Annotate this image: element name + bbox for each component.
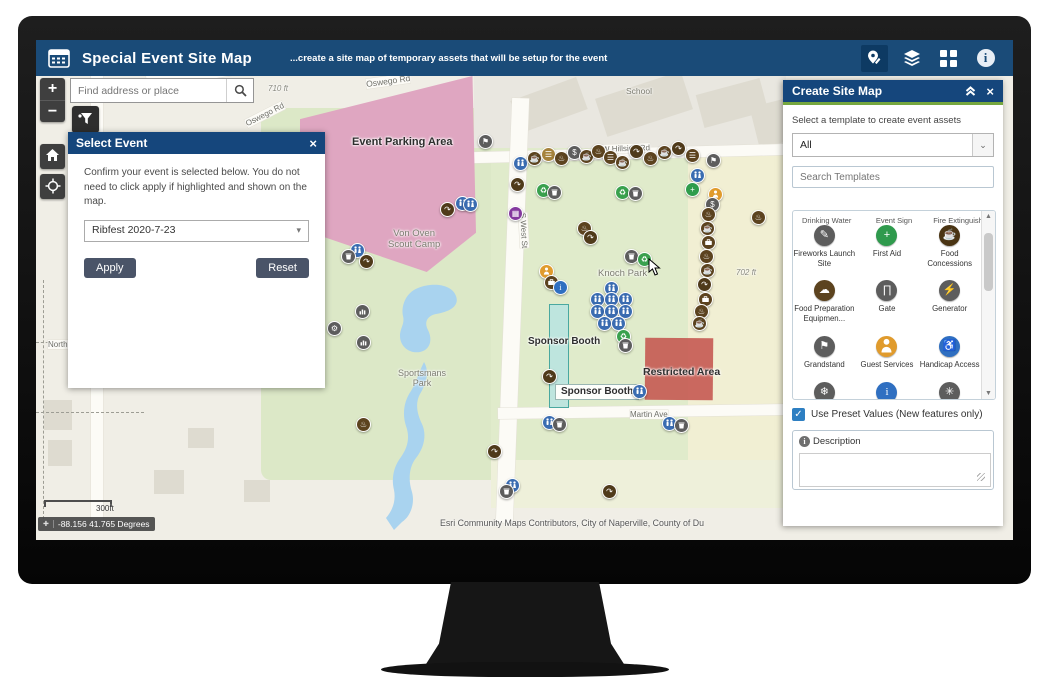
map-label: Restricted Area [643,366,720,378]
marker-trash-icon[interactable] [674,418,689,433]
marker-hotfood-icon[interactable]: ♨ [356,417,371,432]
marker-coffee-icon[interactable]: ☕ [700,221,715,236]
template-label: Food Preparation Equipmen... [793,304,855,323]
template-label: Food Concessions [919,249,981,268]
zoom-out-button[interactable]: − [40,101,65,123]
zoom-in-button[interactable]: + [40,78,65,101]
scroll-up-icon[interactable]: ▲ [982,213,995,220]
scroll-down-icon[interactable]: ▼ [982,390,995,397]
create-site-map-panel: Create Site Map × Select a template to c… [783,80,1003,526]
snow-icon: ❄ [814,382,835,400]
scale-label: 300ft [96,504,114,513]
description-group: i Description [792,430,994,490]
marker-hotfood-icon[interactable]: ♨ [643,151,658,166]
coffee-icon: ☕ [939,225,960,246]
select-event-dialog: Select Event × Confirm your event is sel… [68,132,325,388]
marker-first-aid-icon[interactable]: + [685,182,700,197]
crosshair-icon[interactable]: ✚ [43,520,54,528]
page-title: Special Event Site Map [82,50,252,67]
create-panel-header: Create Site Map × [783,80,1003,102]
select-event-title: Select Event [76,136,309,150]
apply-button[interactable]: Apply [84,258,136,278]
description-textarea[interactable] [799,453,991,487]
marker-restroom-icon[interactable] [513,156,528,171]
marker-coffee-icon[interactable]: ☕ [527,151,542,166]
zoom-controls: + − [40,78,65,122]
select-event-instructions: Confirm your event is selected below. Yo… [84,166,309,210]
marker-trash-icon[interactable] [628,186,643,201]
map-label: Event Parking Area [352,136,452,148]
info-icon: i [977,49,995,67]
home-button[interactable] [40,144,65,169]
map-label: Sponsor Booth [528,336,600,347]
marker-bars-icon[interactable] [356,335,371,350]
template-item[interactable]: ❄Heater - Cooler [793,374,856,400]
template-item[interactable]: +First Aid [856,217,919,268]
edit-pin-button[interactable] [861,45,888,72]
marker-direction-icon[interactable]: ↷ [697,277,712,292]
gate-icon: ∏ [876,280,897,301]
event-dropdown[interactable]: Ribfest 2020-7-23 ▾ [84,220,309,242]
marker-info-icon[interactable]: i [553,280,568,295]
map-label: School [626,86,652,96]
template-label: Fireworks Launch Site [793,249,855,268]
marker-trash-icon[interactable] [552,417,567,432]
template-list: Drinking WaterEvent SignFire Extinguishe… [792,210,996,400]
template-item[interactable]: ✳Laser Light [918,374,981,400]
map-attribution: Esri Community Maps Contributors, City o… [440,518,783,528]
marker-restroom-icon[interactable] [690,168,705,183]
collapse-icon[interactable] [965,86,976,96]
template-label: Gate [879,304,896,314]
preset-values-label: Use Preset Values (New features only) [811,409,983,420]
marker-direction-icon[interactable]: ↷ [440,202,455,217]
layers-button[interactable] [898,45,925,72]
basemap-grid-button[interactable] [935,45,962,72]
scrollbar-thumb[interactable] [984,233,993,291]
info-icon: i [876,382,897,400]
map-zone-yellow-south [491,460,786,508]
marker-coffee-icon[interactable]: ☕ [692,316,707,331]
template-label: Guest Services [861,360,914,370]
template-scrollbar[interactable]: ▲ ▼ [981,211,995,399]
map-label: Von Oven Scout Camp [388,228,440,250]
locate-button[interactable] [40,174,65,199]
app-header: Special Event Site Map ...create a site … [36,40,1013,76]
template-item[interactable]: ⚡Generator [918,272,981,323]
template-item[interactable]: ☁Food Preparation Equipmen... [793,272,856,323]
template-search-input[interactable] [793,172,993,183]
template-label: First Aid [873,249,901,259]
marker-direction-icon[interactable]: ↷ [671,141,686,156]
template-item[interactable]: iInformation Kiosk [856,374,919,400]
preset-values-row: ✓ Use Preset Values (New features only) [792,408,983,421]
template-item[interactable]: ⚑Grandstand [793,328,856,370]
marker-direction-icon[interactable]: ↷ [510,177,525,192]
marker-trash-icon[interactable] [547,185,562,200]
power-icon: ⚡ [939,280,960,301]
reset-button[interactable]: Reset [256,258,309,278]
preset-values-checkbox[interactable]: ✓ [792,408,805,421]
person-icon [876,336,897,357]
search-button[interactable] [226,79,253,102]
close-icon[interactable]: × [309,136,317,151]
plus-icon: + [876,225,897,246]
star-icon: ✳ [939,382,960,400]
page-subtitle: ...create a site map of temporary assets… [290,53,607,64]
marker-coffee-icon[interactable]: ☕ [657,145,672,160]
resize-grip[interactable] [977,473,985,481]
marker-direction-icon[interactable]: ↷ [542,369,557,384]
chevron-down-icon: ⌄ [972,134,993,156]
monitor-stand-base [381,662,669,677]
panel-accent-line [783,102,1003,105]
page: Oswego RdOswego Rd710 ftSchoolW Hillside… [0,0,1049,699]
template-filter-value: All [793,139,972,151]
marker-restroom-icon[interactable] [597,316,612,331]
map-label: Sportsmans Park [398,368,446,388]
chevron-down-icon: ▾ [296,224,301,237]
create-panel-title: Create Site Map [792,84,955,98]
map-label: 710 ft [268,84,288,93]
marker-trash-icon[interactable] [618,338,633,353]
template-label: Handicap Access [920,360,980,370]
marker-burger-icon[interactable]: ☰ [685,148,700,163]
template-filter-select[interactable]: All ⌄ [792,133,994,157]
address-search [70,78,254,103]
select-event-header: Select Event × [68,132,325,154]
info-icon: i [799,436,810,447]
marker-trash-icon[interactable] [499,484,514,499]
search-input[interactable] [71,85,226,97]
marker-hotfood-icon[interactable]: ♨ [701,207,716,222]
marker-vendor-case-icon[interactable] [701,235,716,250]
marker-transit-grid-icon[interactable]: ▦ [508,206,523,221]
marker-hotfood-icon[interactable]: ♨ [699,249,714,264]
marker-restroom-icon[interactable] [632,384,647,399]
marker-gear-icon[interactable]: ⚙ [327,321,342,336]
mouse-cursor [648,258,661,276]
marker-restroom-icon[interactable] [463,197,478,212]
map-label: Knoch Park [598,268,647,279]
template-label: Grandstand [804,360,845,370]
event-dropdown-value: Ribfest 2020-7-23 [92,223,175,238]
marker-flag-icon[interactable]: ⚑ [706,153,721,168]
template-item[interactable]: Guest Services [856,328,919,370]
marker-trash-icon[interactable] [341,249,356,264]
marker-direction-icon[interactable]: ↷ [629,144,644,159]
calendar-icon [48,48,70,68]
info-button[interactable]: i [972,45,999,72]
marker-hotfood-icon[interactable]: ♨ [751,210,766,225]
marker-direction-icon[interactable]: ↷ [487,444,502,459]
marker-direction-icon[interactable]: ↷ [583,230,598,245]
template-instructions: Select a template to create event assets [792,115,994,126]
hat-icon: ☁ [814,280,835,301]
flag-icon: ⚑ [814,336,835,357]
close-icon[interactable]: × [986,84,994,99]
template-item[interactable]: ∏Gate [856,272,919,323]
marker-direction-icon[interactable]: ↷ [602,484,617,499]
pond-and-stream [366,270,496,530]
handicap-icon: ♿ [939,336,960,357]
map-label: Sponsor Booth [555,384,639,400]
app-screen: Oswego RdOswego Rd710 ftSchoolW Hillside… [36,40,1013,540]
description-label: Description [813,436,861,447]
monitor-stand-neck [425,582,625,670]
marker-flag-icon[interactable]: ⚑ [478,134,493,149]
marker-bars-icon[interactable] [355,304,370,319]
template-search [792,166,994,188]
pencil-icon: ✎ [814,225,835,246]
template-label: Generator [932,304,967,314]
map-label: 702 ft [736,268,756,277]
map-label: Martin Ave [630,410,668,419]
coordinate-value: -88.156 41.765 Degrees [58,519,150,529]
template-item[interactable]: ♿Handicap Access [918,328,981,370]
map-label: North [48,340,68,349]
marker-direction-icon[interactable]: ↷ [359,254,374,269]
select-event-tool-button[interactable] [72,106,99,133]
coordinate-readout: ✚ -88.156 41.765 Degrees [38,517,155,531]
marker-coffee-icon[interactable]: ☕ [700,263,715,278]
template-item[interactable]: ☕Food Concessions [918,217,981,268]
template-item[interactable]: ✎Fireworks Launch Site [793,217,856,268]
marker-coffee-icon[interactable]: ☕ [615,155,630,170]
